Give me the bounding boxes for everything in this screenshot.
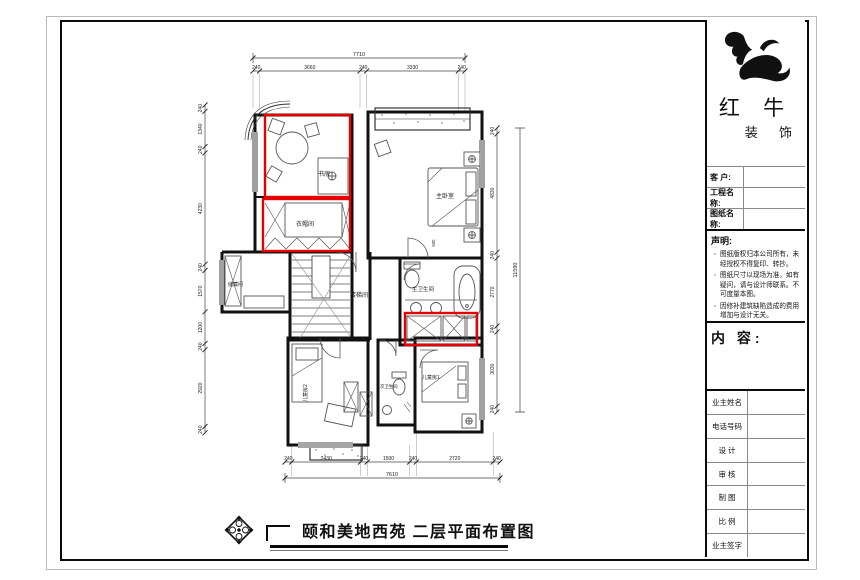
dim-label: 240 bbox=[284, 456, 293, 462]
dim-label: 4230 bbox=[198, 203, 204, 214]
room-label-master-bedroom: 主卧室 bbox=[436, 192, 454, 200]
table-row: 业主签字 bbox=[707, 533, 805, 557]
dim-label: 240 bbox=[359, 65, 368, 71]
bay-window-dots bbox=[381, 113, 464, 123]
statement-item: 因修补建筑缺陷造成的费用增加与设计无关。 bbox=[714, 302, 802, 321]
room-label-master-bath: 主卫生间 bbox=[412, 285, 434, 293]
dim-top-total: 7710 bbox=[353, 52, 365, 58]
dim-label: 2920 bbox=[198, 382, 204, 393]
statement-item: 图纸尺寸以现场为准，如有疑问，请与设计师联系。不可度量本图。 bbox=[714, 271, 802, 300]
sheet-title-strip: 颐和美地西苑 二层平面布置图 bbox=[224, 515, 535, 545]
dim-label: 3030 bbox=[490, 363, 496, 374]
field-row-client: 客 户: bbox=[707, 166, 805, 187]
dim-label: 240 bbox=[198, 342, 204, 351]
dim-label: 240 bbox=[490, 127, 496, 136]
content-section: 内 容: bbox=[707, 321, 805, 389]
field-label: 客 户: bbox=[707, 167, 743, 187]
dim-label: 240 bbox=[458, 65, 467, 71]
row-value bbox=[747, 510, 805, 533]
room-label-stairwell: 楼梯间 bbox=[350, 291, 368, 299]
dim-label: 240 bbox=[198, 425, 204, 434]
hongniu-logo-icon bbox=[714, 28, 798, 90]
title-block: 红 牛 装 饰 客 户: 工程名称: 图纸名称: 声明: 图纸版权归本公司所有，… bbox=[705, 20, 805, 557]
dim-label: 240 bbox=[198, 145, 204, 154]
room-label-storage: 储藏间 bbox=[228, 281, 243, 288]
row-label: 业主姓名 bbox=[707, 391, 747, 414]
dim-label: 4830 bbox=[490, 187, 496, 198]
field-label: 工程名称: bbox=[707, 188, 743, 208]
row-value bbox=[747, 534, 805, 557]
statement-item: 图纸版权归本公司所有，未经授权不得复印、转抄。 bbox=[714, 250, 802, 269]
field-value bbox=[743, 209, 805, 229]
table-row: 制 图 bbox=[707, 485, 805, 509]
table-row: 业主姓名 bbox=[707, 391, 805, 414]
dim-label: 600 bbox=[431, 239, 436, 247]
field-row-drawing-name: 图纸名称: bbox=[707, 208, 805, 229]
table-row: 设 计 bbox=[707, 438, 805, 462]
title-underline bbox=[270, 550, 508, 551]
dim-bottom-total: 7610 bbox=[386, 472, 398, 478]
row-value bbox=[747, 486, 805, 509]
dim-label: 1570 bbox=[198, 285, 204, 296]
row-label: 电话号码 bbox=[707, 415, 747, 438]
bottom-table: 业主姓名 电话号码 设 计 审 核 制 图 比 例 业主签字 bbox=[707, 389, 805, 557]
title-bracket bbox=[266, 525, 290, 541]
row-label: 设 计 bbox=[707, 439, 747, 462]
table-row: 比 例 bbox=[707, 509, 805, 533]
dim-label: 240 bbox=[360, 456, 369, 462]
dim-label: 1340 bbox=[198, 123, 204, 134]
field-row-project: 工程名称: bbox=[707, 187, 805, 208]
room-label-kids-2: 儿童房2 bbox=[302, 384, 309, 402]
floor-plan-svg: 7710 240 3660 240 3330 240 240 2430 240 … bbox=[60, 20, 705, 557]
row-value bbox=[747, 463, 805, 486]
drawing-sheet: 7710 240 3660 240 3330 240 240 2430 240 … bbox=[0, 0, 860, 580]
dim-label: 2770 bbox=[490, 286, 496, 297]
row-label: 审 核 bbox=[707, 463, 747, 486]
dim-label: 240 bbox=[198, 263, 204, 272]
statement-heading: 声明: bbox=[711, 234, 802, 247]
row-label: 比 例 bbox=[707, 510, 747, 533]
dim-label: 3330 bbox=[407, 65, 418, 71]
dim-label: 2720 bbox=[449, 456, 460, 462]
room-label-kids-1: 儿童房1 bbox=[422, 374, 440, 381]
stairs bbox=[292, 254, 350, 338]
row-label: 业主签字 bbox=[707, 534, 747, 557]
sheet-title: 颐和美地西苑 二层平面布置图 bbox=[302, 518, 535, 542]
row-label: 制 图 bbox=[707, 486, 747, 509]
statement-list: 图纸版权归本公司所有，未经授权不得复印、转抄。 图纸尺寸以现场为准，如有疑问，请… bbox=[711, 250, 802, 321]
dim-label: 2430 bbox=[321, 456, 332, 462]
dim-label: 1200 bbox=[198, 322, 204, 333]
brand-name: 红 牛 bbox=[719, 92, 793, 122]
dim-label: 240 bbox=[490, 405, 496, 414]
dim-right-total: 11590 bbox=[513, 263, 519, 278]
dim-label: 240 bbox=[198, 104, 204, 113]
dim-label: 240 bbox=[409, 456, 418, 462]
field-value bbox=[743, 167, 805, 187]
dim-label: 1500 bbox=[383, 456, 394, 462]
room-label-study: 书房 bbox=[318, 170, 330, 178]
dim-label: 240 bbox=[492, 456, 501, 462]
table-row: 审 核 bbox=[707, 462, 805, 486]
table-row: 电话号码 bbox=[707, 414, 805, 438]
brand-subname: 装 饰 bbox=[745, 122, 801, 141]
dim-label: 240 bbox=[490, 325, 496, 334]
room-label-second-bath: 次卫生间 bbox=[380, 383, 398, 390]
content-label: 内 容: bbox=[711, 330, 764, 346]
field-value bbox=[743, 188, 805, 208]
room-label-cloakroom: 衣帽间 bbox=[296, 220, 314, 228]
dim-label: 240 bbox=[252, 65, 261, 71]
diamond-ornament-icon bbox=[224, 515, 254, 545]
logo-zone: 红 牛 装 饰 bbox=[707, 20, 805, 166]
statement-section: 声明: 图纸版权归本公司所有，未经授权不得复印、转抄。 图纸尺寸以现场为准，如有… bbox=[707, 229, 805, 321]
dim-label: 3660 bbox=[304, 65, 315, 71]
row-value bbox=[747, 439, 805, 462]
dim-label: 240 bbox=[490, 251, 496, 260]
field-label: 图纸名称: bbox=[707, 209, 743, 229]
row-value bbox=[747, 391, 805, 414]
row-value bbox=[747, 415, 805, 438]
title-underline bbox=[270, 545, 508, 548]
